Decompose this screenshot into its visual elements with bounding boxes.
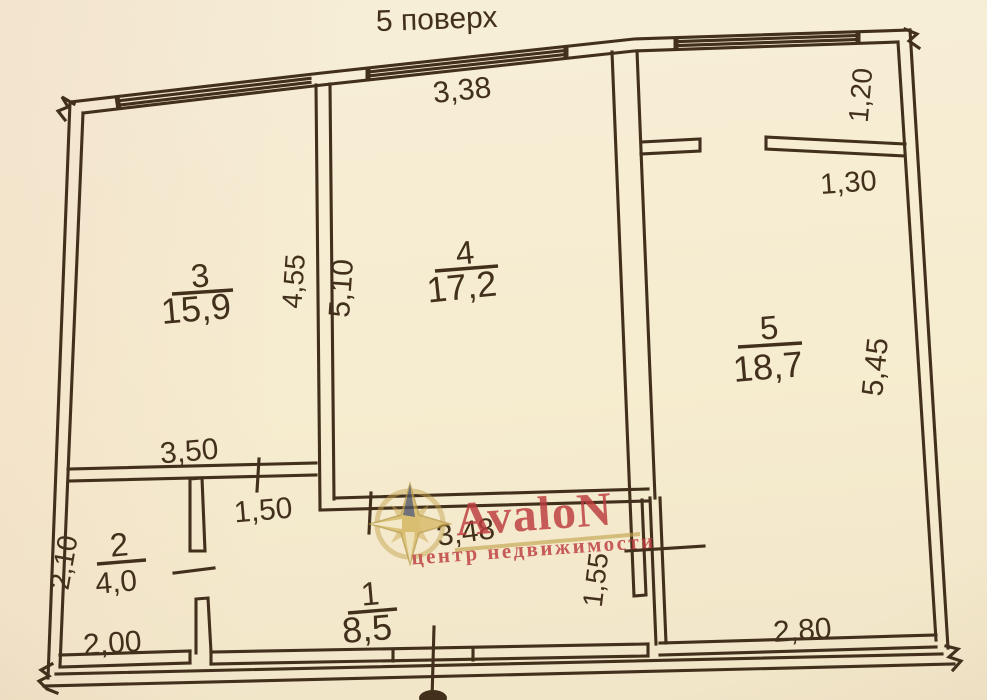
- dim-hall-right-height: 1,55: [577, 551, 614, 609]
- room-2-area: 4,0: [94, 564, 138, 601]
- dim-room4-left-height: 5,10: [323, 258, 360, 319]
- entrance-blob: [419, 690, 447, 700]
- room-2-fraction-bar: [97, 560, 146, 564]
- dim-room4-top-width: 3,38: [431, 71, 493, 110]
- outer-bottom-wall-outer-line: [44, 664, 954, 686]
- wall-hall-room5-face-left: [650, 498, 656, 644]
- break-bottom-right: [946, 646, 961, 670]
- wall-room4-room5-right-line: [637, 51, 655, 498]
- floor-title: 5 поверх: [375, 1, 498, 38]
- tick-room3-bottom: [257, 459, 259, 491]
- wall-balcony-stub-left: [641, 139, 700, 154]
- floorplan-drawing: 5 поверх 3,38 3 15,9 4,55 5,10 4 17,2 1,…: [0, 0, 987, 700]
- room-5-area: 18,7: [731, 343, 804, 390]
- wall-room3-room4-left-line: [316, 85, 320, 507]
- dim-room3-right-height: 4,55: [276, 253, 311, 310]
- room-3-area: 15,9: [159, 285, 232, 332]
- room-5-number: 5: [758, 308, 780, 346]
- dim-balcony-depth: 1,20: [843, 67, 879, 124]
- dim-room3-bottom-width: 3,50: [159, 433, 220, 471]
- tick-room2-door: [174, 568, 214, 573]
- wall-room4-room5-left-line: [612, 52, 630, 500]
- dim-hall-top-left-width: 1,50: [233, 492, 294, 530]
- dim-room5-right-height: 5,45: [856, 336, 895, 398]
- dim-room5-bottom-width: 2,80: [772, 612, 833, 649]
- dim-room5-top-offset: 1,30: [819, 165, 878, 201]
- wall-room2-bottom-bot-line: [60, 663, 190, 667]
- floorplan-photo: 5 поверх 3,38 3 15,9 4,55 5,10 4 17,2 1,…: [0, 0, 987, 700]
- wall-room1-bottom-top-line: [211, 644, 648, 652]
- window-room3-post: [117, 97, 119, 110]
- tick-hall-top: [369, 493, 371, 533]
- break-marks: [39, 29, 961, 693]
- wall-hall-room5-face-right: [660, 498, 666, 643]
- wall-room2-right-lower: [196, 598, 211, 653]
- room-2-number: 2: [108, 525, 130, 563]
- wall-balcony-stub-right: [766, 137, 905, 156]
- outer-walls: [44, 30, 954, 686]
- interior-walls: [60, 51, 936, 667]
- dim-room2-bottom-width: 2,00: [82, 625, 143, 662]
- entrance-axis-tick: [432, 627, 434, 699]
- outer-left-wall-outer-line: [48, 102, 70, 678]
- dim-room2-left-height: 2,10: [44, 533, 84, 592]
- wall-room2-right-upper: [190, 478, 205, 551]
- room-1-area: 8,5: [340, 606, 393, 651]
- room-4-area: 17,2: [425, 263, 499, 311]
